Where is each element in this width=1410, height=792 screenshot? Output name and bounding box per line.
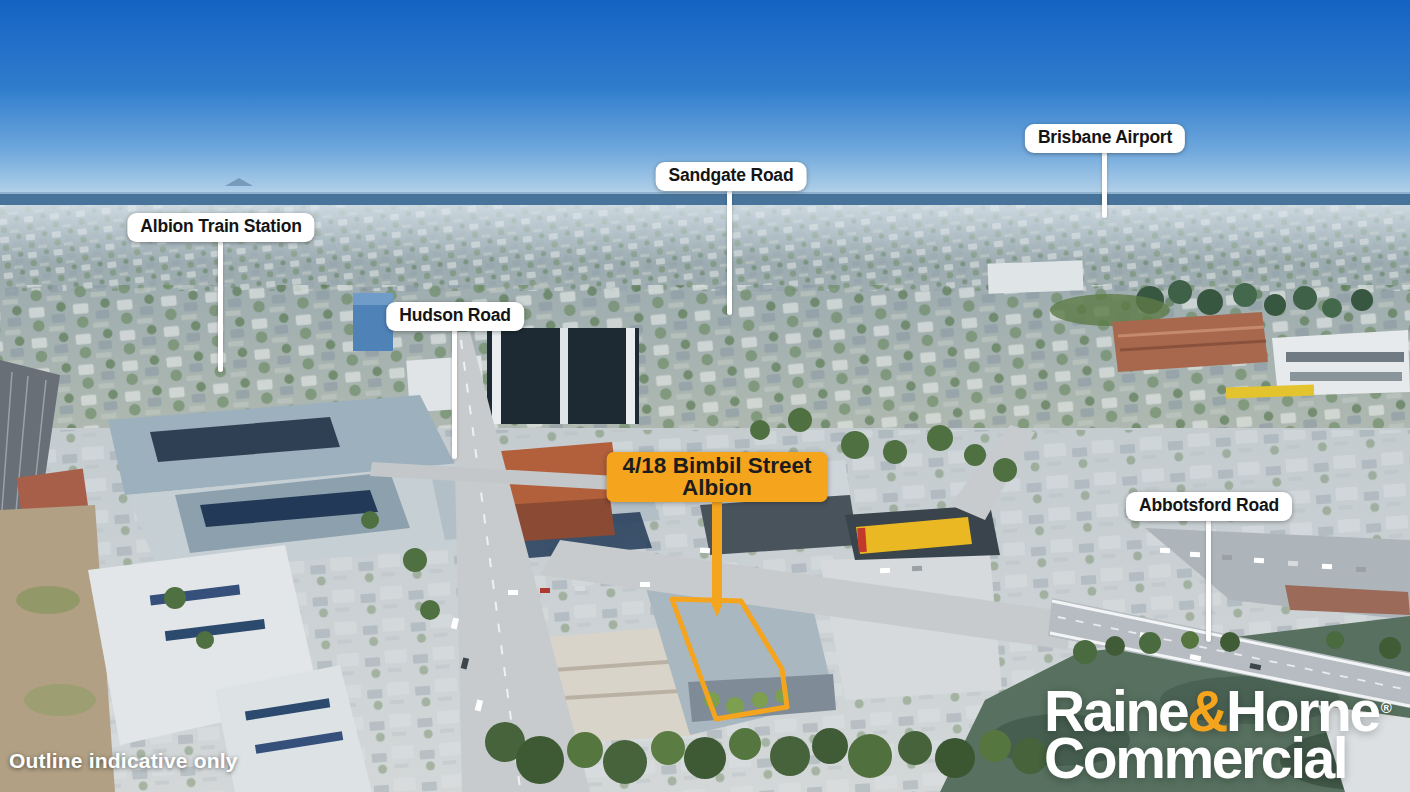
location-label-hudson-road: Hudson Road bbox=[386, 302, 524, 331]
location-label-brisbane-airport: Brisbane Airport bbox=[1025, 124, 1185, 153]
leader-line-sandgate-road bbox=[727, 182, 732, 315]
disclaimer-text: Outline indicative only bbox=[9, 749, 238, 773]
property-address-line1: 4/18 Bimbil Street bbox=[623, 455, 812, 477]
brand-logo: Raine&Horne® Commercial bbox=[1044, 684, 1392, 781]
location-label-albion-train-station: Albion Train Station bbox=[127, 213, 314, 242]
leader-line-abbotsford-road bbox=[1206, 510, 1211, 642]
brand-registered-mark: ® bbox=[1381, 699, 1392, 716]
aerial-view: Albion Train Station Hudson Road Sandgat… bbox=[0, 0, 1410, 792]
leader-line-albion-train-station bbox=[218, 234, 223, 372]
property-address-label: 4/18 Bimbil Street Albion bbox=[607, 452, 828, 502]
leader-line-hudson-road bbox=[452, 323, 457, 459]
location-label-sandgate-road: Sandgate Road bbox=[656, 162, 807, 191]
location-label-abbotsford-road: Abbotsford Road bbox=[1126, 492, 1292, 521]
property-outline bbox=[655, 590, 795, 726]
brand-word-commercial: Commercial bbox=[1044, 735, 1392, 781]
leader-line-brisbane-airport bbox=[1102, 144, 1107, 218]
property-address-line2: Albion bbox=[623, 477, 812, 499]
